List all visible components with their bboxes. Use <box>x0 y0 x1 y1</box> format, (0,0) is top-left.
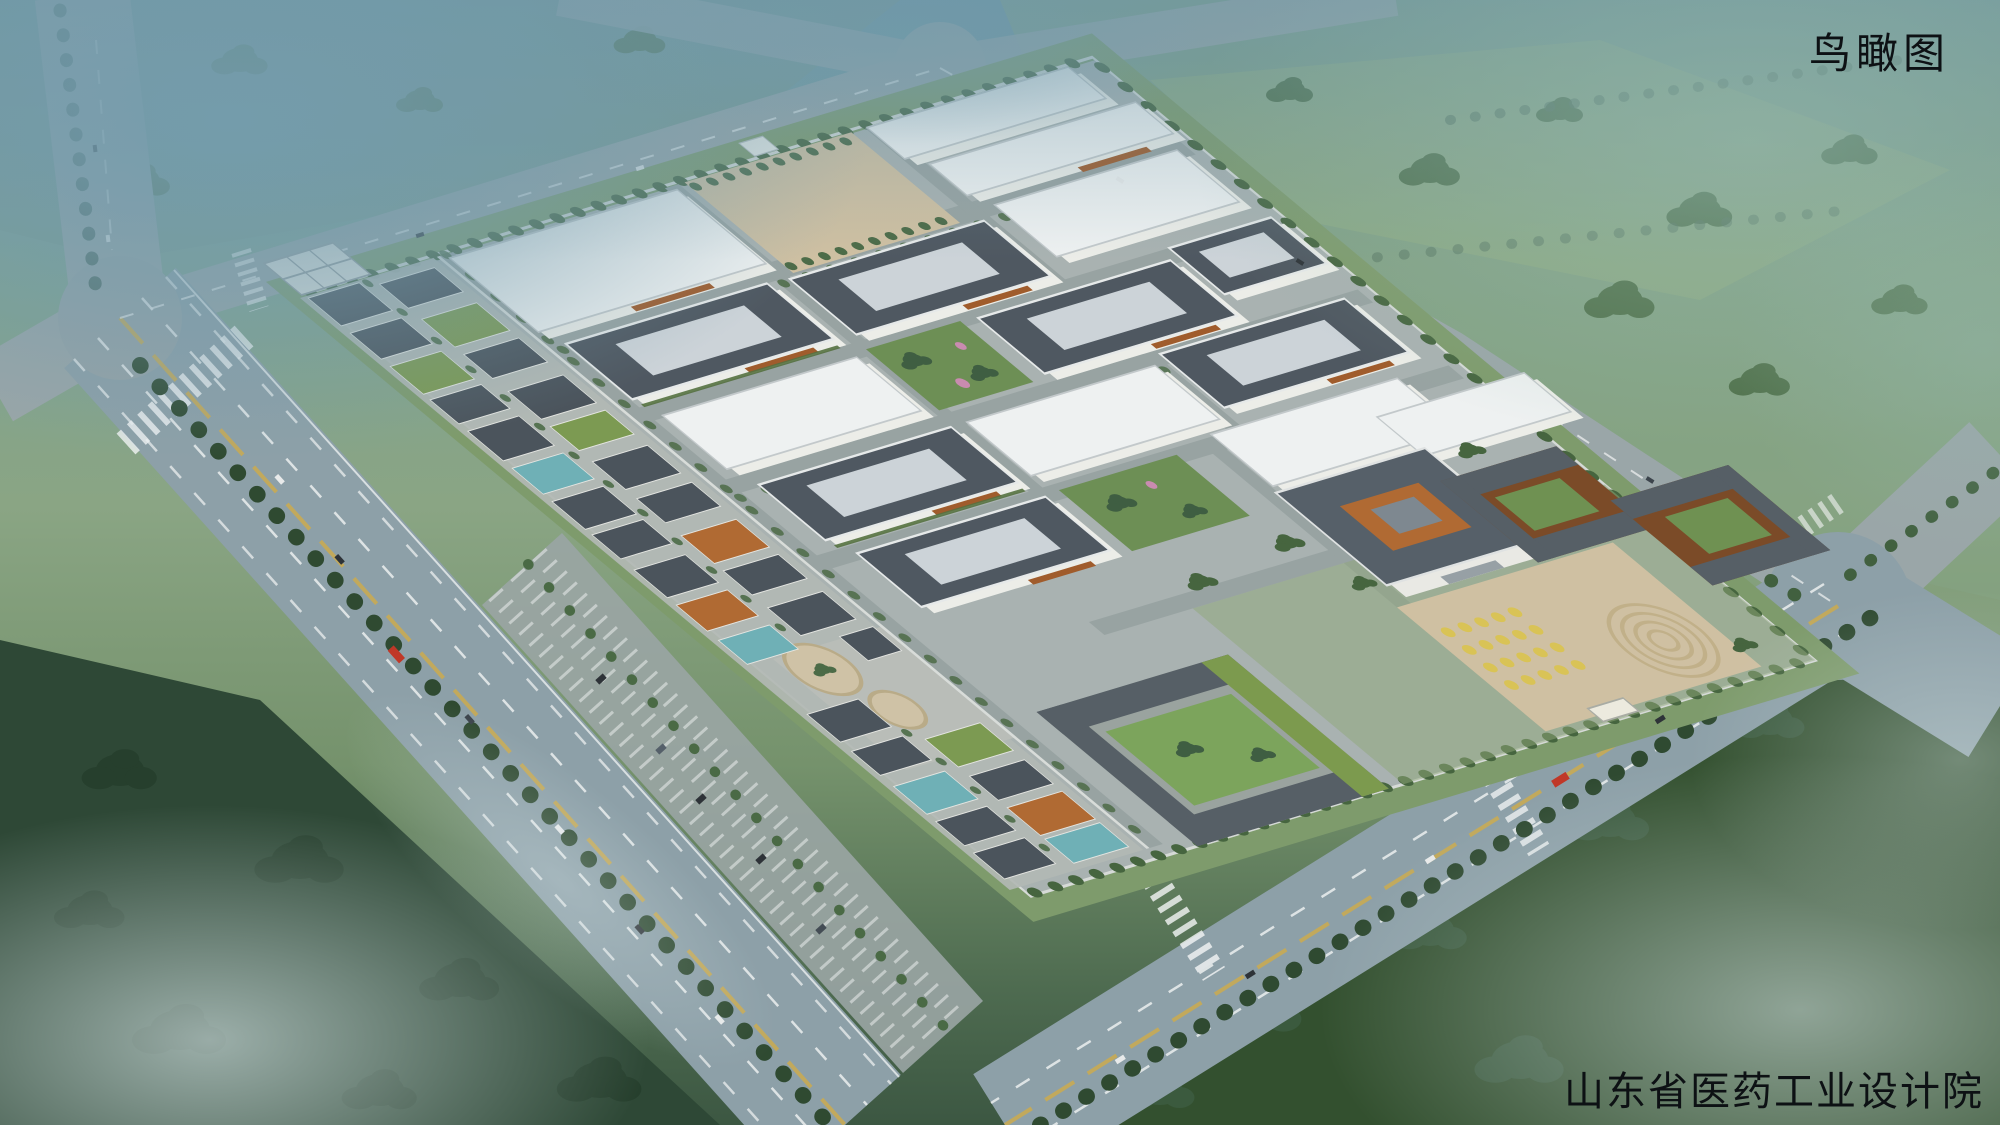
design-institute-credit: 山东省医药工业设计院 <box>1564 1059 1984 1117</box>
rendering-artwork <box>0 0 2000 1125</box>
view-title-label: 鸟瞰图 <box>1809 20 1950 81</box>
aerial-rendering: 鸟瞰图 山东省医药工业设计院 <box>0 0 2000 1125</box>
